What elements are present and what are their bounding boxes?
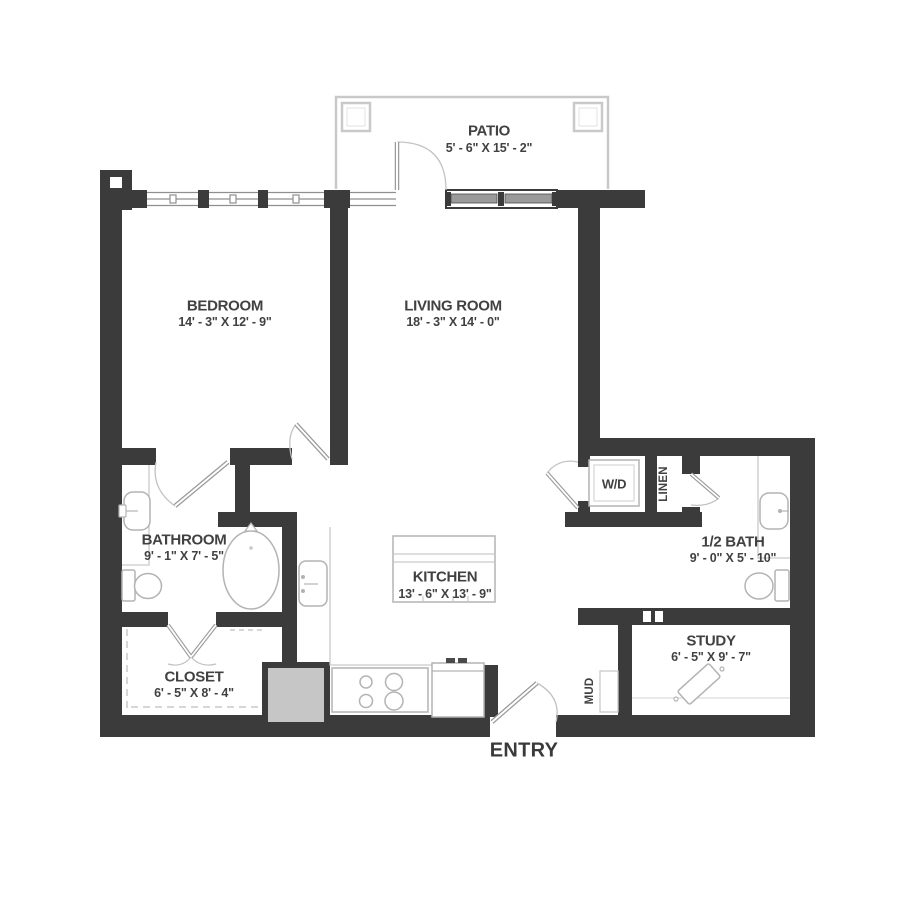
study-label: STUDY: [686, 633, 735, 650]
half-bath-label: 1/2 BATH: [701, 534, 764, 551]
kitchen-sink-icon: [299, 561, 327, 606]
closet-dims: 6' - 5" X 8' - 4": [154, 686, 234, 700]
patio-dims: 5' - 6" X 15' - 2": [446, 141, 532, 155]
washer-dryer-label: W/D: [602, 477, 626, 492]
patio-sliding-window: [446, 190, 557, 208]
bedroom-window-3: [268, 191, 324, 207]
bedroom-window-1: [147, 191, 198, 207]
living-room-dims: 18' - 3" X 14' - 0": [406, 315, 499, 329]
mud-label: MUD: [584, 678, 596, 705]
bathtub-icon: [223, 523, 279, 609]
bathroom-label: BATHROOM: [142, 532, 227, 549]
washer-dryer-door: [547, 461, 578, 508]
patio-post-left: [342, 103, 370, 131]
living-window-left: [350, 191, 396, 207]
kitchen-dims: 13' - 6" X 13' - 9": [398, 587, 491, 601]
bathroom-toilet-icon: [122, 570, 162, 601]
bedroom-dims: 14' - 3" X 12' - 9": [178, 315, 271, 329]
bedroom-door: [290, 424, 328, 459]
floor-plan: PATIO 5' - 6" X 15' - 2" BEDROOM 14' - 3…: [0, 0, 900, 900]
patio-door: [397, 142, 446, 190]
half-bath-dims: 9' - 0" X 5' - 10": [690, 551, 776, 565]
entry-label: ENTRY: [490, 740, 559, 763]
half-bath-door: [691, 474, 719, 505]
bedroom-window-2: [209, 191, 258, 207]
mud-bench: [600, 671, 618, 712]
refrigerator-icon: [432, 658, 484, 717]
patio-label: PATIO: [468, 123, 510, 140]
entry-door: [492, 683, 557, 722]
patio-post-right: [574, 103, 602, 131]
fixtures-layer: [0, 0, 900, 900]
stove-icon: [332, 668, 428, 712]
bedroom-label: BEDROOM: [187, 298, 263, 315]
study-dims: 6' - 5" X 9' - 7": [671, 650, 751, 664]
linen-label: LINEN: [658, 466, 670, 502]
closet-double-door: [168, 625, 216, 665]
half-bath-toilet-icon: [745, 570, 789, 601]
bathroom-door: [155, 462, 228, 506]
bathroom-dims: 9' - 1" X 7' - 5": [144, 549, 224, 563]
closet-label: CLOSET: [164, 669, 223, 686]
living-room-label: LIVING ROOM: [404, 298, 502, 315]
kitchen-label: KITCHEN: [413, 569, 478, 586]
